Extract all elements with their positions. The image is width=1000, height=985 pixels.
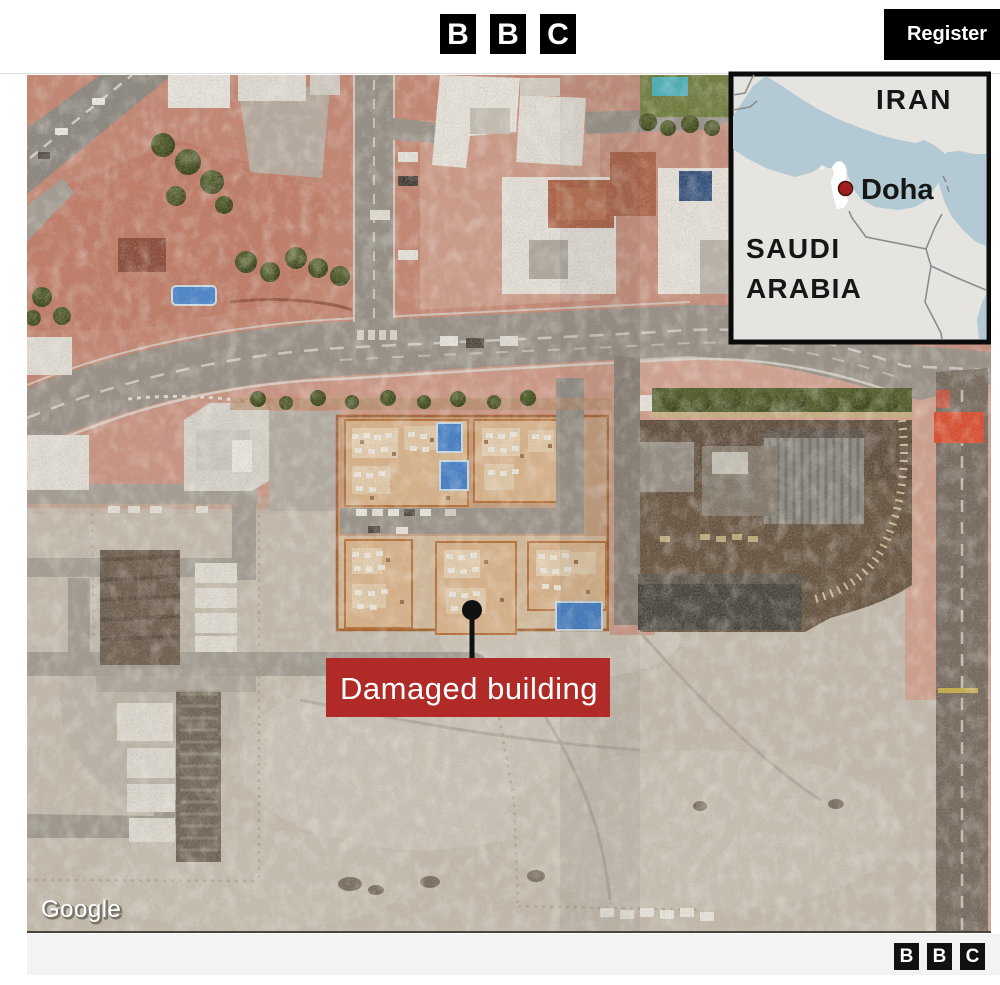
svg-text:SAUDI: SAUDI [746, 233, 841, 264]
svg-text:Doha: Doha [861, 174, 934, 206]
svg-text:Damaged building: Damaged building [340, 671, 598, 706]
svg-text:Google: Google [41, 896, 121, 923]
svg-text:IRAN: IRAN [876, 84, 952, 115]
svg-text:ARABIA: ARABIA [746, 273, 862, 304]
